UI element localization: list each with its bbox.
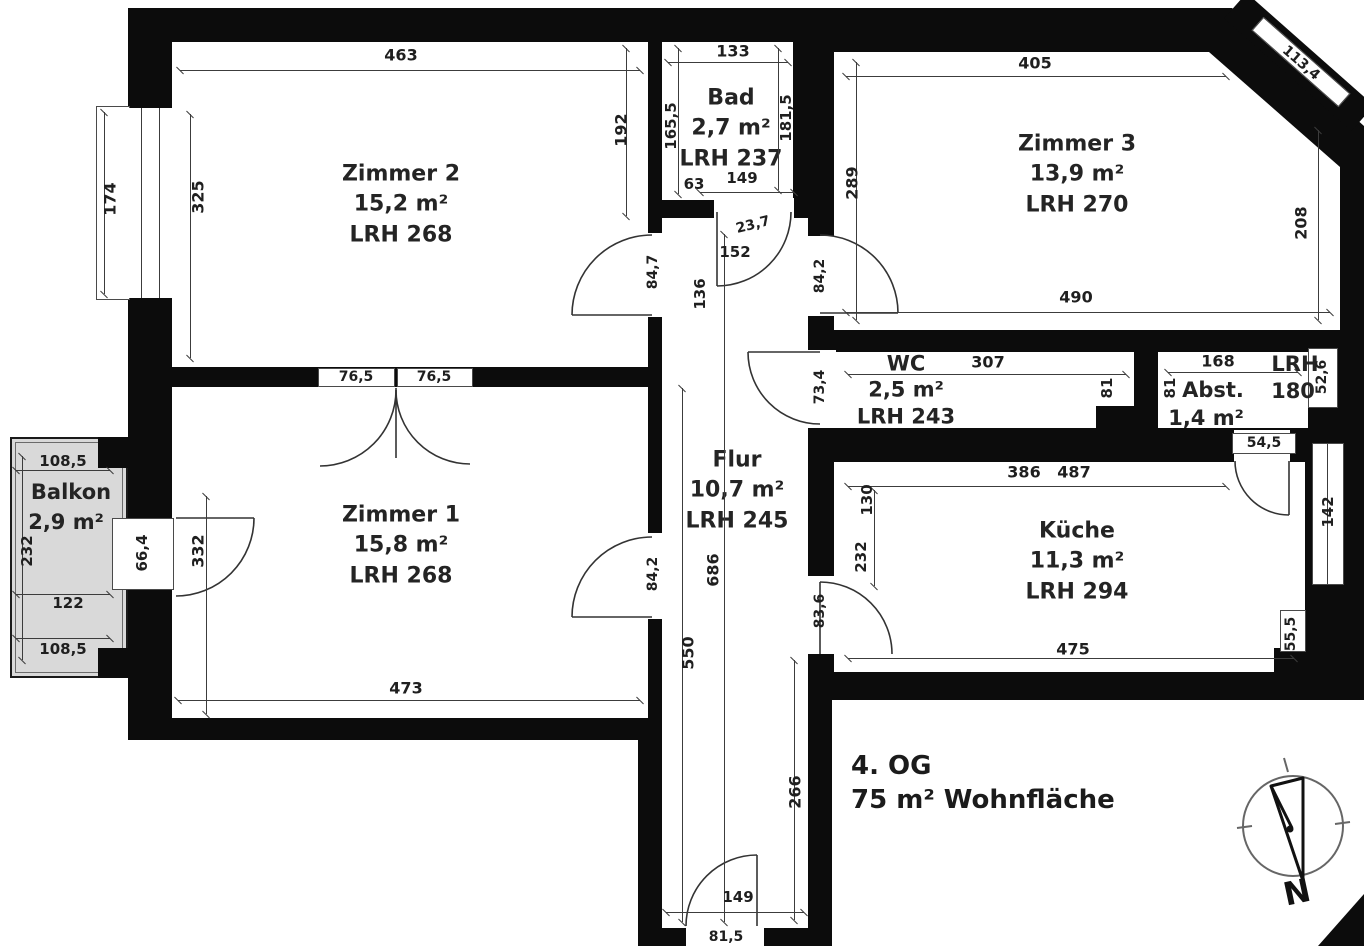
dimension-label: 84,7 bbox=[645, 255, 661, 290]
dimension-line bbox=[190, 114, 191, 358]
dimension-line bbox=[668, 62, 788, 63]
dimension-label: 108,5 bbox=[39, 640, 86, 658]
compass-center-dot bbox=[1287, 826, 1294, 833]
dimension-label: 232 bbox=[852, 541, 870, 572]
compass-tick-east bbox=[1335, 822, 1350, 824]
dimension-label: 84,2 bbox=[812, 259, 828, 294]
dimension-label: 84,2 bbox=[645, 557, 661, 592]
floor-plan: N Zimmer 2 15,2 m² LRH 268 Bad 2,7 m² LR… bbox=[0, 0, 1364, 946]
dimension-label: 54,5 bbox=[1247, 435, 1282, 451]
dimension-label: 550 bbox=[679, 636, 698, 669]
dimension-label: 475 bbox=[1056, 640, 1089, 659]
dimension-label: 289 bbox=[843, 166, 862, 199]
dimension-line bbox=[16, 638, 110, 639]
room-label-kueche: Küche 11,3 m² LRH 294 bbox=[1026, 516, 1129, 607]
door-arc-kueche bbox=[820, 582, 892, 654]
room-ceiling-height: LRH 270 bbox=[1018, 190, 1136, 220]
door-arc-wc bbox=[748, 352, 820, 424]
dimension-label: 108,5 bbox=[39, 452, 86, 470]
dimension-label: 165,5 bbox=[662, 102, 680, 149]
room-name: Zimmer 3 bbox=[1018, 129, 1136, 159]
dimension-label: 130 bbox=[858, 484, 876, 515]
dimension-line bbox=[846, 312, 1330, 313]
dimension-line bbox=[848, 374, 1126, 375]
dimension-line bbox=[846, 76, 1226, 77]
dimension-label: 181,5 bbox=[777, 94, 795, 141]
dimension-line bbox=[700, 192, 794, 193]
dimension-label: 232 bbox=[18, 535, 36, 566]
room-area: 10,7 m² bbox=[686, 476, 789, 506]
dimension-label: 325 bbox=[189, 180, 208, 213]
dimension-label: 174 bbox=[101, 182, 120, 215]
dimension-label: 55,5 bbox=[1283, 617, 1299, 652]
compass-tick-top bbox=[1284, 758, 1288, 772]
door-arc-french-right bbox=[396, 390, 470, 464]
dimension-line bbox=[16, 470, 110, 471]
room-label-flur: Flur 10,7 m² LRH 245 bbox=[686, 445, 789, 536]
room-ceiling-height: LRH 245 bbox=[686, 506, 789, 536]
dimension-label: 463 bbox=[384, 46, 417, 65]
dimension-line bbox=[1318, 130, 1319, 320]
dimension-label: 152 bbox=[719, 243, 750, 261]
dimension-line bbox=[666, 912, 804, 913]
dimension-label: 133 bbox=[716, 42, 749, 61]
dimension-label: 405 bbox=[1018, 54, 1051, 73]
door-arc-french-left bbox=[320, 390, 396, 466]
compass-circle bbox=[1243, 776, 1343, 876]
room-area: 2,5 m² bbox=[857, 377, 955, 403]
dimension-label: 386 bbox=[1007, 463, 1040, 482]
dimension-label: 332 bbox=[189, 534, 208, 567]
dimension-label: 63 bbox=[684, 175, 705, 193]
dimension-label: 81,5 bbox=[709, 929, 744, 945]
room-name: Zimmer 1 bbox=[342, 500, 460, 530]
room-ceiling-height: LRH 294 bbox=[1026, 577, 1129, 607]
dimension-label: 81 bbox=[1098, 378, 1116, 399]
door-arc-abst bbox=[1235, 461, 1289, 515]
dimension-label: 168 bbox=[1201, 352, 1234, 371]
door-arc-zimmer1 bbox=[572, 537, 652, 617]
dimension-label: 473 bbox=[389, 679, 422, 698]
corner-wedge bbox=[1318, 894, 1364, 946]
floor-level: 4. OG bbox=[851, 750, 1115, 784]
dimension-line bbox=[180, 70, 640, 71]
compass: N bbox=[1237, 758, 1350, 914]
dimension-label: 487 bbox=[1057, 463, 1090, 482]
dimension-label: 149 bbox=[726, 169, 757, 187]
dimension-label: 142 bbox=[1319, 496, 1337, 527]
room-ceiling-height: LRH 243 bbox=[857, 403, 955, 429]
dimension-label: 307 bbox=[971, 353, 1004, 372]
room-area: 11,3 m² bbox=[1026, 547, 1129, 577]
room-name: Bad bbox=[680, 83, 783, 113]
room-label-balkon-name: Balkon bbox=[31, 480, 111, 504]
dimension-line bbox=[1168, 372, 1298, 373]
room-label-zimmer2: Zimmer 2 15,2 m² LRH 268 bbox=[342, 159, 460, 250]
living-area: 75 m² Wohnfläche bbox=[851, 784, 1115, 818]
dimension-label: 136 bbox=[691, 278, 709, 309]
room-name: Flur bbox=[686, 445, 789, 475]
dimension-line bbox=[848, 486, 1226, 487]
room-label-balkon-area: 2,9 m² bbox=[28, 510, 104, 534]
room-area: 15,2 m² bbox=[342, 190, 460, 220]
dimension-label: 81 bbox=[1161, 378, 1179, 399]
dimension-label: 192 bbox=[612, 113, 631, 146]
room-label-bad: Bad 2,7 m² LRH 237 bbox=[680, 83, 783, 174]
door-arc-zimmer2 bbox=[572, 235, 652, 315]
room-label-abst-area: 1,4 m² bbox=[1168, 406, 1244, 430]
room-name: WC bbox=[857, 351, 955, 377]
dimension-label: 686 bbox=[704, 553, 723, 586]
dimension-line bbox=[724, 234, 725, 922]
room-name: Zimmer 2 bbox=[342, 159, 460, 189]
dimension-label: 490 bbox=[1059, 288, 1092, 307]
room-label-zimmer1: Zimmer 1 15,8 m² LRH 268 bbox=[342, 500, 460, 591]
dimension-label: 76,5 bbox=[339, 369, 374, 385]
dimension-label: 83,6 bbox=[812, 594, 828, 629]
room-area: 2,7 m² bbox=[680, 114, 783, 144]
dimension-label: 66,4 bbox=[133, 534, 151, 571]
room-ceiling-height: LRH 268 bbox=[342, 561, 460, 591]
room-label-wc: WC 2,5 m² LRH 243 bbox=[857, 351, 955, 430]
door-arc-zimmer3 bbox=[820, 235, 898, 313]
compass-north-label: N bbox=[1280, 871, 1314, 914]
dimension-label: 73,4 bbox=[812, 370, 828, 405]
dimension-label: 122 bbox=[52, 594, 83, 612]
room-name: Küche bbox=[1026, 516, 1129, 546]
dimension-label: 52,6 bbox=[1314, 360, 1330, 395]
room-label-zimmer3: Zimmer 3 13,9 m² LRH 270 bbox=[1018, 129, 1136, 220]
room-label-abst-name: Abst. bbox=[1182, 378, 1244, 402]
room-label-abst-lrh-value: 180 bbox=[1271, 379, 1315, 403]
room-area: 15,8 m² bbox=[342, 531, 460, 561]
dimension-label: 208 bbox=[1292, 206, 1311, 239]
dimension-line bbox=[178, 700, 640, 701]
floor-summary: 4. OG 75 m² Wohnfläche bbox=[851, 750, 1115, 818]
dimension-label: 266 bbox=[786, 775, 805, 808]
dimension-line bbox=[206, 496, 207, 714]
dimension-label: 149 bbox=[722, 888, 753, 906]
dimension-label: 76,5 bbox=[417, 369, 452, 385]
room-area: 13,9 m² bbox=[1018, 160, 1136, 190]
room-ceiling-height: LRH 268 bbox=[342, 220, 460, 250]
compass-tick-west bbox=[1237, 826, 1252, 828]
